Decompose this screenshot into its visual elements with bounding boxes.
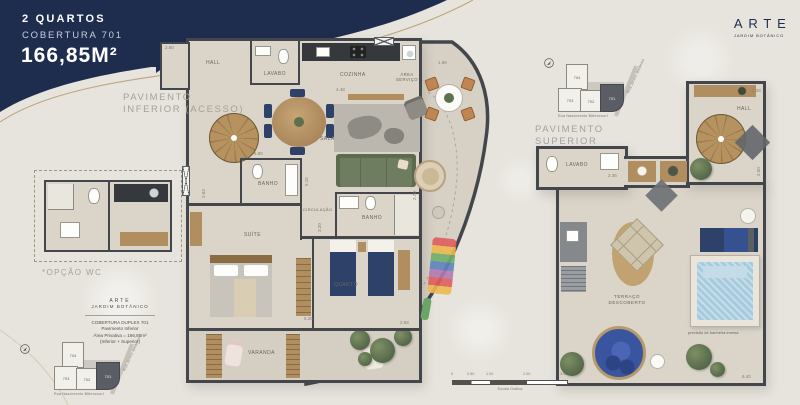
- quarto-bed2: [368, 240, 394, 296]
- shrub: [370, 338, 395, 363]
- room-label-banho2: BANHO: [362, 215, 382, 221]
- keyplan-unit-703: 703: [558, 88, 582, 112]
- hall-cabinet: [694, 85, 756, 97]
- north-arrow-icon: [544, 58, 554, 68]
- keyplan-unit-701-highlight: 701: [600, 84, 624, 112]
- brand-name: ARTE: [734, 16, 790, 31]
- lower-floor-title: PAVIMENTO INFERIOR (ACESSO): [123, 92, 244, 116]
- cooktop: [350, 46, 366, 58]
- wall: [335, 192, 337, 238]
- side-table-round: [740, 208, 756, 224]
- room-label-suite: SUÍTE: [244, 232, 261, 238]
- wc-lower-cabinet: [120, 232, 168, 246]
- wall: [250, 41, 252, 85]
- suite-wardrobe: [296, 258, 311, 316]
- keyplan-unit-703: 703: [54, 366, 78, 390]
- wall: [188, 203, 302, 206]
- unit-number: 703: [567, 98, 574, 103]
- window-marker: [182, 166, 190, 196]
- dimension-label: 6.40: [742, 374, 751, 379]
- chair: [264, 104, 272, 118]
- banho2-vanity: [339, 196, 359, 209]
- vent-window-marker: [374, 37, 394, 46]
- chair: [290, 89, 305, 97]
- pool-note: previsão de banheira imersa: [688, 330, 738, 335]
- dimension-label: 5.20: [304, 316, 313, 321]
- wall: [188, 328, 420, 331]
- grill-module: [561, 266, 586, 292]
- unit-number: 701: [105, 374, 112, 379]
- bed-pillow: [244, 265, 268, 276]
- dimension-label: 6.90: [254, 151, 263, 156]
- header-unit: COBERTURA 701: [22, 30, 123, 41]
- unit-number: 704: [70, 353, 77, 358]
- room-label-upper-lavabo: LAVABO: [566, 162, 588, 168]
- quarto-desk: [398, 250, 410, 290]
- wc-kitchen-counter: [114, 184, 168, 202]
- wall: [250, 83, 300, 85]
- lower-floor-title-line1: PAVIMENTO: [123, 92, 244, 104]
- room-label-terraco: TERRAÇO DESCOBERTO: [596, 294, 658, 307]
- dimension-label: 2.83: [201, 189, 206, 198]
- wall: [302, 236, 420, 239]
- street-label-bottom: Rua Nascimento Bittencourt: [558, 114, 608, 118]
- shrub: [394, 328, 412, 346]
- bed-throw: [234, 279, 256, 317]
- header-room-count: 2 QUARTOS: [22, 13, 106, 25]
- scale-tick-label: 0: [451, 372, 453, 376]
- upper-floor-title-line2: SUPERIOR: [535, 136, 604, 148]
- lavabo-sink: [255, 46, 271, 56]
- dimension-label: 2.28: [752, 88, 761, 93]
- room-label-quarto: QUARTO: [334, 282, 358, 288]
- upper-lavabo-sink: [600, 153, 619, 170]
- side-table-white: [650, 354, 665, 369]
- keyplan-unit-702: 702: [580, 90, 602, 112]
- lower-floor-title-line2: INFERIOR (ACESSO): [123, 104, 244, 116]
- terrace-plant: [560, 352, 584, 376]
- keyplan-unit-704: 704: [62, 342, 84, 368]
- double-sunbed: [700, 228, 758, 252]
- terrace-plant: [686, 344, 712, 370]
- round-daybed: [592, 326, 646, 380]
- varanda-planter: [206, 334, 222, 378]
- brand-tagline: JARDIM BOTÂNICO: [728, 33, 790, 38]
- scale-caption: Escala Gráfica: [452, 387, 568, 391]
- dimension-label: 2.70: [412, 191, 417, 200]
- brand-logo: ARTE JARDIM BOTÂNICO: [728, 16, 790, 38]
- wc-sink: [60, 222, 80, 238]
- dimension-label: 2.36: [608, 173, 617, 178]
- unit-number: 704: [574, 75, 581, 80]
- bed-pillow: [214, 265, 238, 276]
- upper-lavabo-toilet: [546, 156, 558, 172]
- info-brand2: JARDIM BOTÂNICO: [52, 304, 188, 310]
- unit-number: 701: [609, 96, 616, 101]
- banho1-vanity: [285, 164, 298, 196]
- keyplan-unit-702: 702: [76, 368, 98, 390]
- room-label-sala: SALA: [320, 136, 335, 142]
- keyplan-upper: 704 703 702 701 Rua Nascimento Bittencou…: [550, 58, 634, 122]
- stair-center: [231, 135, 237, 141]
- room-label-banho1: BANHO: [258, 181, 278, 187]
- scale-tick-label: 1.00: [486, 372, 493, 376]
- quarto-nightstand: [358, 242, 366, 252]
- wall: [240, 158, 242, 205]
- shrub: [350, 330, 370, 350]
- scale-bar: 0 0.50 1.00 2.00 3.00 Escala Gráfica: [452, 372, 568, 391]
- unit-number: 702: [84, 377, 91, 382]
- dining-plant: [294, 117, 304, 127]
- keyplan-unit-704: 704: [566, 64, 588, 90]
- wc-option-label: *OPÇÃO WC: [42, 268, 102, 277]
- header-area: 166,85M²: [21, 44, 118, 68]
- scale-tick-label: 2.00: [523, 372, 530, 376]
- room-label-varanda: VARANDA: [248, 350, 275, 356]
- dimension-label: 3.20: [317, 223, 322, 232]
- room-label-circulacao: CIRCULAÇÃO: [303, 208, 332, 212]
- upper-floor-title: PAVIMENTO SUPERIOR: [535, 124, 604, 148]
- lavabo-toilet: [278, 49, 289, 64]
- sofa: [336, 154, 416, 187]
- north-arrow-icon: [20, 344, 30, 354]
- terraco-line2: DESCOBERTO: [596, 300, 658, 306]
- stair-center: [718, 136, 724, 142]
- unit-number: 703: [63, 376, 70, 381]
- banho1-toilet: [252, 164, 263, 179]
- hall-plant: [690, 158, 712, 180]
- upper-floor-title-line1: PAVIMENTO: [535, 124, 604, 136]
- keyplan-lower: 704 703 702 701 Rua Nascimento Bittencou…: [46, 336, 130, 400]
- outdoor-counter: [560, 222, 587, 262]
- room-label-upper-hall: HALL: [737, 106, 751, 112]
- dimension-label: 2.50: [756, 167, 761, 176]
- dimension-label: 2.58: [400, 320, 409, 325]
- sofa-pillow: [397, 159, 409, 170]
- chair: [264, 124, 272, 138]
- wall: [108, 182, 110, 250]
- dimension-label: 4.48: [336, 87, 345, 92]
- upper-cabinet-stove: [660, 161, 687, 182]
- wc-shower: [48, 184, 74, 210]
- banho2-shower: [394, 195, 418, 235]
- room-label-hall: HALL: [206, 60, 220, 66]
- room-label-area-servico: ÁREA SERVIÇO: [394, 72, 420, 82]
- room-label-lavabo: LAVABO: [264, 71, 286, 77]
- terrace-plant: [710, 362, 725, 377]
- wall: [335, 192, 420, 194]
- scale-bar-rule: [452, 380, 568, 385]
- floorplan-sheet: 2 QUARTOS COBERTURA 701 166,85M² ARTE JA…: [0, 0, 800, 405]
- pouf: [432, 206, 445, 219]
- dimension-label: 5.15: [304, 177, 309, 186]
- scale-tick-label: 0.50: [467, 372, 474, 376]
- outdoor-sink: [566, 230, 579, 242]
- wc-toilet: [88, 188, 100, 204]
- shrub: [358, 352, 372, 366]
- dimension-label: 1.98: [438, 60, 447, 65]
- dimension-label: 2.80: [165, 45, 174, 50]
- kitchen-sink: [316, 47, 330, 57]
- room-label-cozinha: COZINHA: [340, 72, 366, 78]
- upper-cabinet-sink: [628, 161, 656, 182]
- varanda-planter: [286, 334, 300, 378]
- banho2-toilet: [365, 196, 376, 210]
- wall: [298, 41, 300, 85]
- console-table: [348, 94, 404, 100]
- unit-number: 702: [588, 99, 595, 104]
- hanging-chair-cushion: [422, 168, 439, 185]
- keyplan-unit-701-highlight: 701: [96, 362, 120, 390]
- pool-step: [703, 266, 747, 278]
- wall: [240, 158, 302, 160]
- wall: [300, 158, 302, 240]
- suite-dresser: [190, 212, 202, 246]
- chair: [326, 104, 334, 118]
- washing-machine: [402, 45, 416, 60]
- chair: [290, 147, 305, 155]
- balcony-plant: [444, 93, 454, 103]
- street-label-bottom: Rua Nascimento Bittencourt: [54, 392, 104, 396]
